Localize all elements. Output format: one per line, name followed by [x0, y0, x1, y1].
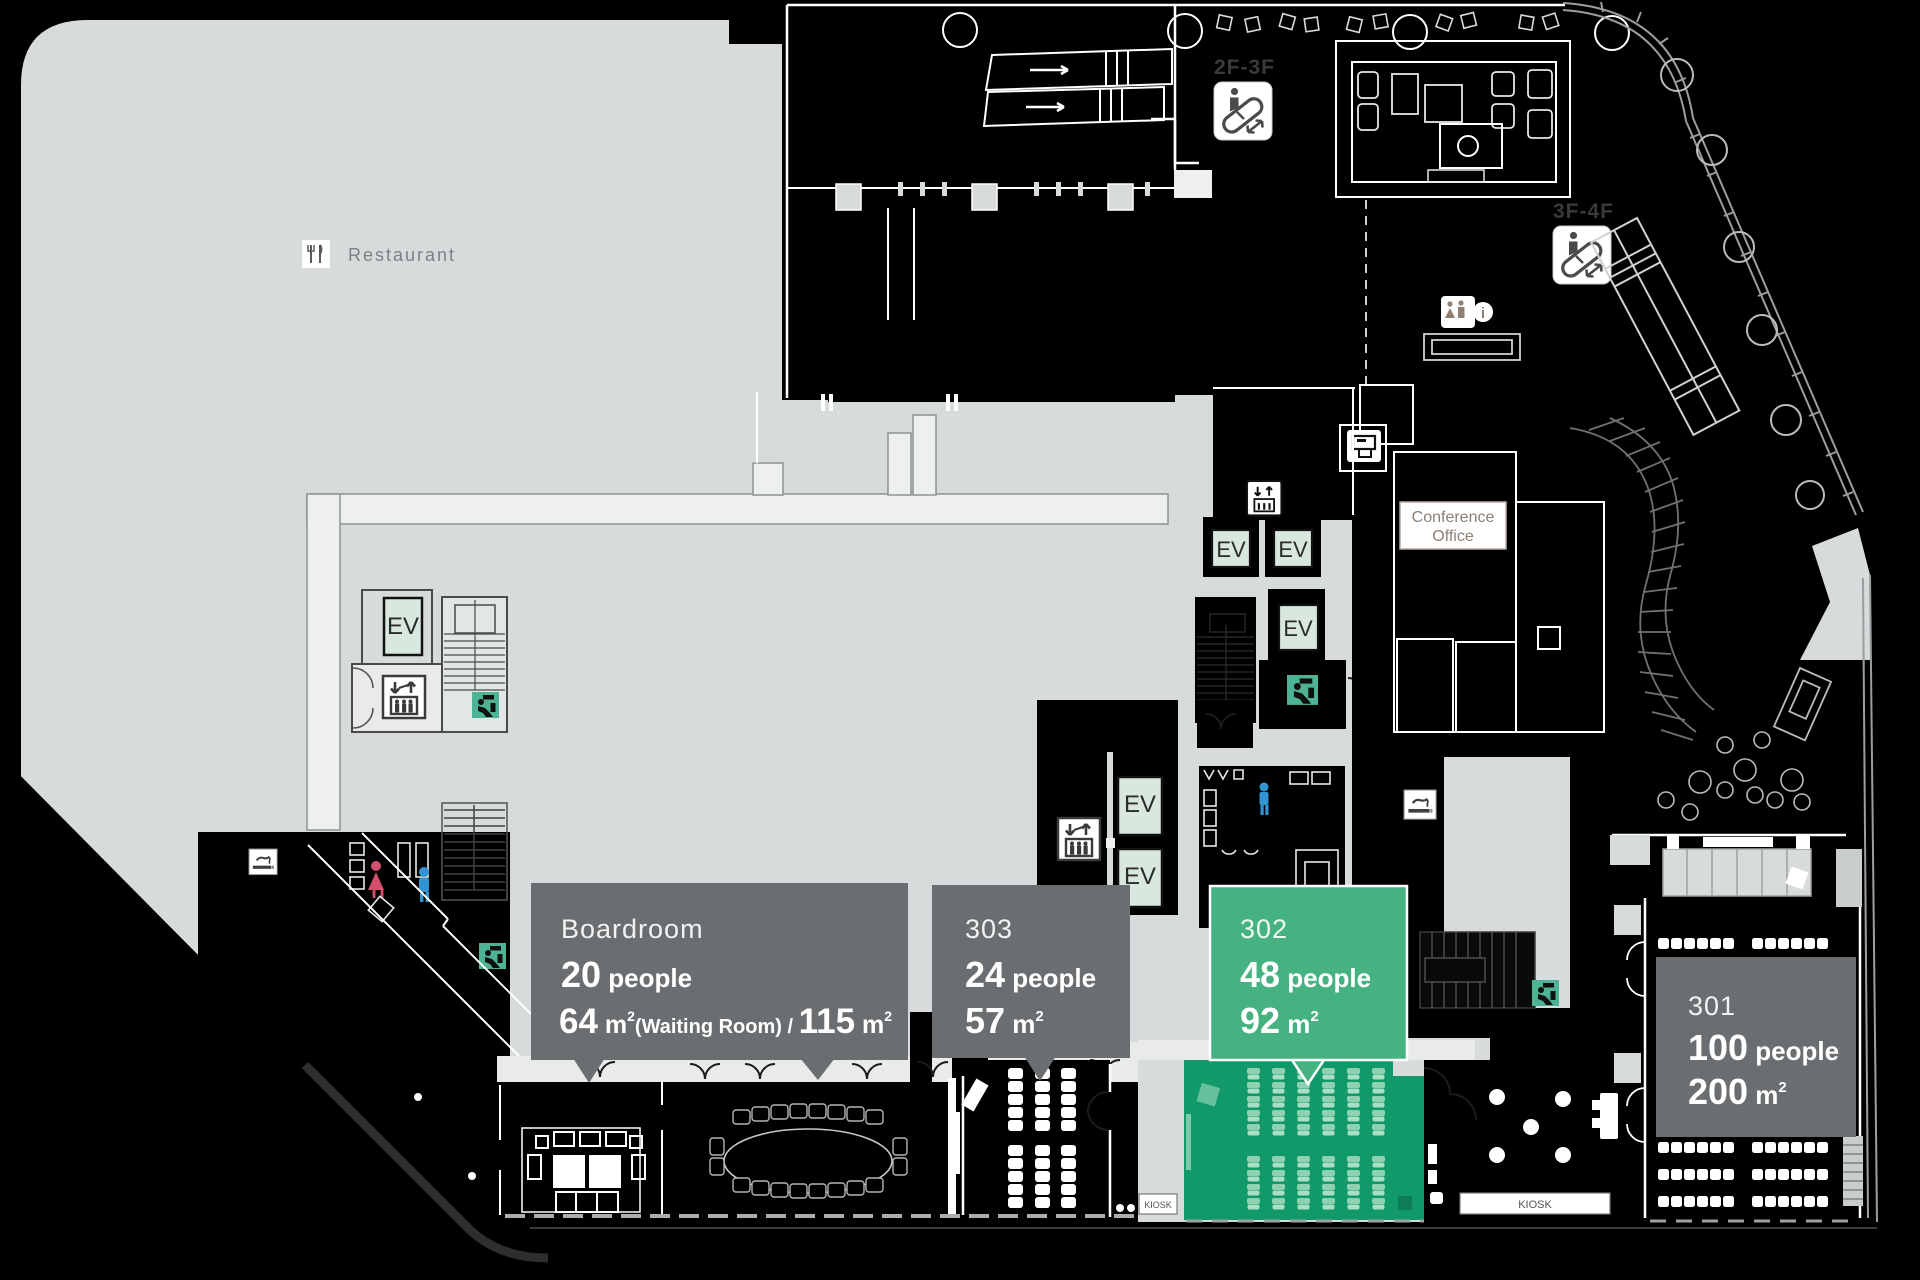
- svg-text:2F-3F: 2F-3F: [1214, 56, 1275, 79]
- svg-text:EV: EV: [1283, 616, 1313, 641]
- svg-text:3F-4F: 3F-4F: [1553, 200, 1614, 223]
- svg-text:Boardroom: Boardroom: [561, 914, 704, 944]
- svg-text:301: 301: [1688, 991, 1736, 1021]
- svg-text:302: 302: [1240, 914, 1288, 944]
- svg-text:EV: EV: [387, 613, 419, 640]
- svg-text:KIOSK: KIOSK: [1144, 1200, 1172, 1210]
- svg-text:EV: EV: [1124, 791, 1156, 818]
- svg-text:303: 303: [965, 914, 1013, 944]
- svg-text:EV: EV: [1278, 537, 1308, 562]
- svg-text:KIOSK: KIOSK: [1518, 1199, 1552, 1211]
- svg-text:i: i: [1481, 305, 1485, 322]
- svg-text:Conference: Conference: [1412, 509, 1495, 526]
- svg-text:EV: EV: [1216, 537, 1246, 562]
- svg-text:Office: Office: [1432, 528, 1474, 545]
- svg-text:Restaurant: Restaurant: [348, 245, 456, 265]
